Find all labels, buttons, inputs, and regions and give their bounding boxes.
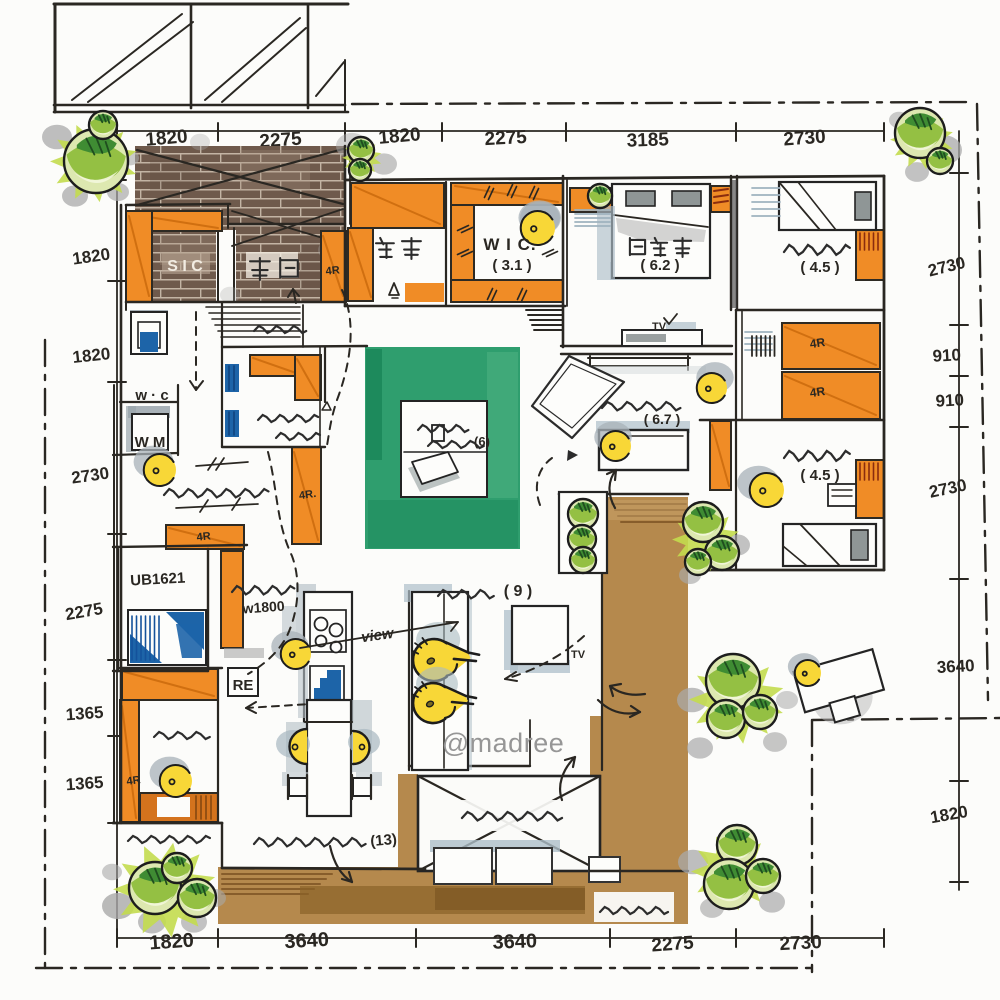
svg-text:( 4.5 ): ( 4.5 ) [800,467,839,484]
svg-text:1820: 1820 [378,124,422,149]
svg-text:TV: TV [652,321,667,333]
svg-text:@madree: @madree [442,728,564,758]
svg-text:3185: 3185 [626,129,669,151]
svg-text:2730: 2730 [783,127,827,151]
svg-text:( 9 ): ( 9 ) [504,583,532,600]
svg-text:1365: 1365 [65,703,104,725]
svg-text:4R: 4R [126,774,142,788]
svg-text:4R: 4R [809,335,826,351]
svg-text:(13): (13) [370,831,398,850]
svg-text:( 6.7 ): ( 6.7 ) [644,411,681,427]
svg-text:3640: 3640 [284,929,330,953]
svg-text:UB1621: UB1621 [130,570,186,590]
svg-text:TV: TV [571,649,586,661]
svg-text:( 6.2 ): ( 6.2 ) [640,257,679,274]
svg-text:4R: 4R [196,530,211,543]
svg-text:3640: 3640 [936,656,975,677]
svg-text:S I C: S I C [167,258,203,275]
svg-text:RE: RE [233,677,254,694]
svg-text:910: 910 [932,345,961,365]
svg-text:2275: 2275 [484,127,528,150]
svg-text:1820: 1820 [72,344,112,367]
svg-text:4R.: 4R. [298,488,317,502]
svg-text:2730: 2730 [779,932,822,955]
svg-text:W M: W M [135,434,166,451]
svg-text:3640: 3640 [492,930,537,954]
svg-text:(6): (6) [474,434,490,449]
svg-text:( 4.5 ): ( 4.5 ) [800,259,839,276]
svg-text:4R: 4R [325,264,340,277]
svg-text:4R: 4R [809,384,826,400]
svg-text:1365: 1365 [65,773,104,795]
svg-text:w1800: w1800 [241,598,285,617]
svg-text:( 3.1 ): ( 3.1 ) [492,257,531,274]
svg-text:w · c: w · c [134,387,168,404]
svg-text:W I C.: W I C. [483,235,536,254]
svg-text:2275: 2275 [651,933,695,957]
svg-text:910: 910 [935,390,964,410]
